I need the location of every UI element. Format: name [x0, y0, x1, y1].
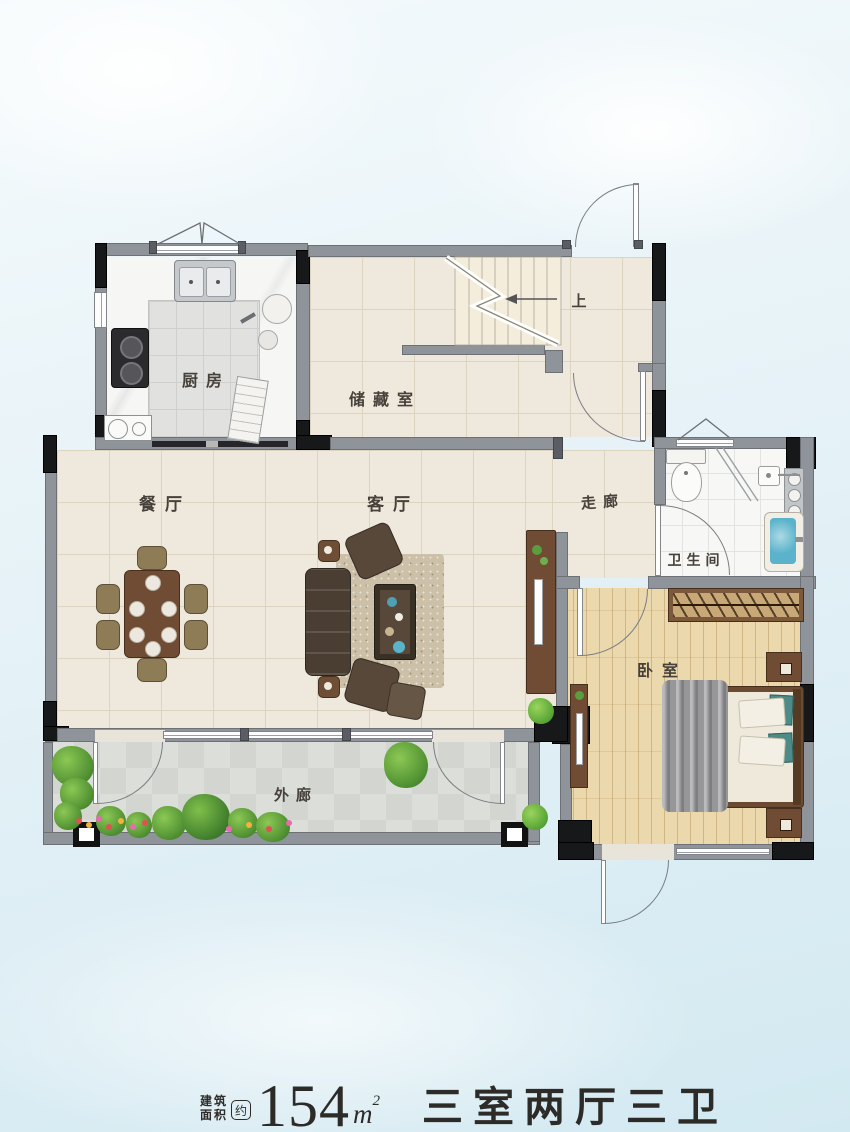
- caption-layout-summary: 三室两厅三卫: [422, 1084, 728, 1130]
- caption-area-unit: m2: [353, 1093, 380, 1130]
- casement-window-icon: [202, 223, 240, 244]
- room-label-kitchen: 厨房: [168, 367, 244, 391]
- shower-partition: [716, 448, 758, 501]
- caption-unit-m: m: [353, 1099, 373, 1129]
- caption-area-prefix: 建筑 面积: [200, 1094, 228, 1122]
- room-label-bedroom: 卧室: [622, 657, 702, 681]
- room-label-veranda: 外廊: [258, 784, 334, 805]
- room-label-bathroom: 卫生间: [658, 550, 734, 570]
- casement-window-icon: [678, 419, 730, 440]
- staircase: [446, 257, 561, 345]
- caption-area-prefix-line2: 面积: [200, 1108, 228, 1122]
- caption-area-prefix-line1: 建筑: [200, 1094, 228, 1108]
- room-label-storage: 储藏室: [330, 386, 440, 410]
- caption: 建筑 面积 约 154 m2 三室两厅三卫: [200, 1066, 728, 1132]
- casement-window-icon: [158, 223, 202, 244]
- caption-area-value: 154: [257, 1080, 350, 1132]
- caption-unit-exponent: 2: [373, 1093, 381, 1109]
- caption-approx-badge: 约: [231, 1100, 251, 1120]
- stairs-up-label: 上: [568, 290, 590, 311]
- room-label-living: 客厅: [348, 490, 438, 515]
- room-label-dining: 餐厅: [120, 490, 210, 515]
- floor-plan-canvas: 厨房 储藏室 餐厅 客厅 走廊 卫生间 卧室 外廊 上 建筑 面积 约 154 …: [0, 0, 850, 1132]
